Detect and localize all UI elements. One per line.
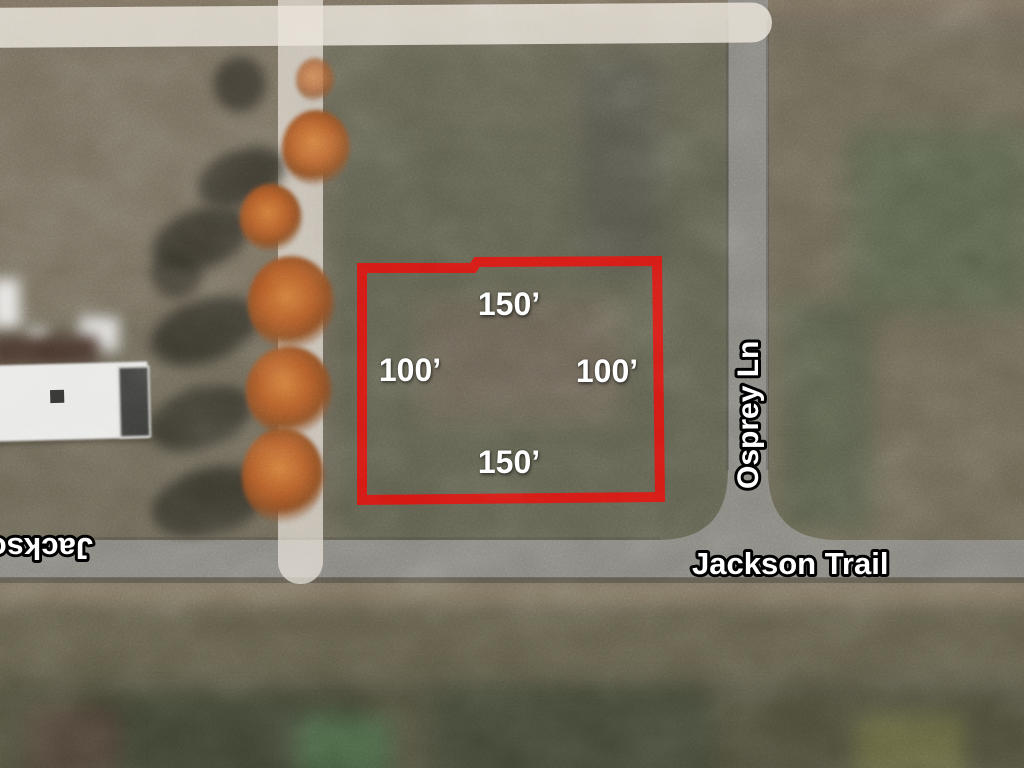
brush-band-2: [0, 680, 1024, 768]
field-top-strip: [0, 0, 1024, 16]
field-right-green-2: [780, 300, 870, 530]
building-layer: [0, 0, 1024, 768]
road-gray-network: [0, 0, 1024, 578]
brush-maroon: [30, 706, 120, 768]
parcel-field: [330, 140, 740, 550]
veg-column: [580, 60, 660, 270]
road-north-edge-line: [0, 537, 660, 540]
street-label-osprey-ln: Osprey Ln: [732, 341, 765, 489]
street-label-jackson-trail: Jackson Trail: [692, 546, 888, 581]
road-south-edge-line: [0, 577, 1024, 583]
tree-canopy: [282, 110, 350, 186]
tree-canopy: [240, 184, 302, 252]
noise-grain-overlay: [0, 0, 1024, 768]
route-band-vertical: [278, 0, 323, 584]
parcel-boundary: [362, 261, 660, 500]
building-shed: [78, 316, 119, 352]
parcel-dimension-top: 150’: [478, 288, 540, 320]
tree-shadow: [143, 453, 277, 550]
tree-canopy: [296, 58, 334, 102]
noise-blotch-overlay: [0, 0, 1024, 768]
route-band-top: [0, 2, 772, 48]
parcel-brown-center: [420, 300, 620, 420]
tree-canopy: [248, 256, 334, 350]
tree-shadow: [139, 373, 260, 463]
tree-shadow: [143, 194, 259, 283]
tree-shadow: [189, 135, 295, 220]
building-small-square: [28, 328, 46, 345]
osprey-west-edge: [726, 20, 729, 470]
brush-dark-1: [90, 700, 360, 768]
shoulder-south: [0, 580, 1024, 608]
field-right: [770, 36, 1024, 556]
tree-shadow: [141, 283, 267, 380]
street-labels-layer: Jackson Trail Osprey Ln Jackso: [0, 0, 1024, 768]
tree-canopy: [242, 428, 324, 524]
street-label-jackson-flipped: Jackso: [0, 531, 93, 566]
terrain-layer: [0, 0, 1024, 768]
building-main: [0, 362, 149, 442]
building-roof-dark: [0, 335, 99, 368]
parcel-dimension-right: 100’: [576, 355, 638, 387]
osprey-east-edge: [766, 20, 769, 470]
parcel-outline-layer: [0, 0, 1024, 768]
green-bush-right: [855, 715, 965, 768]
map-viewport[interactable]: 150’ 100’ 100’ 150’ Jackson Trail Osprey…: [0, 0, 1024, 768]
tree-canopy: [246, 346, 332, 436]
green-bush-left: [300, 718, 390, 768]
field-upper-left: [0, 40, 310, 340]
brush-band-1: [0, 606, 1024, 684]
field-right-green-1: [850, 130, 1024, 310]
building-window: [50, 390, 64, 403]
parcel-dimension-left: 100’: [379, 354, 441, 386]
brush-dark-2: [430, 690, 710, 768]
tree-shadow: [214, 56, 266, 112]
tree-shadow: [150, 252, 202, 298]
parcel-dimension-bottom: 150’: [478, 446, 540, 478]
trees-layer: [0, 0, 1024, 768]
field-center-upper: [320, 40, 740, 160]
building-partial-topleft: [0, 279, 20, 328]
building-dark-end: [117, 365, 151, 438]
field-lower-left: [0, 320, 300, 560]
roads-layer: [0, 0, 1024, 768]
